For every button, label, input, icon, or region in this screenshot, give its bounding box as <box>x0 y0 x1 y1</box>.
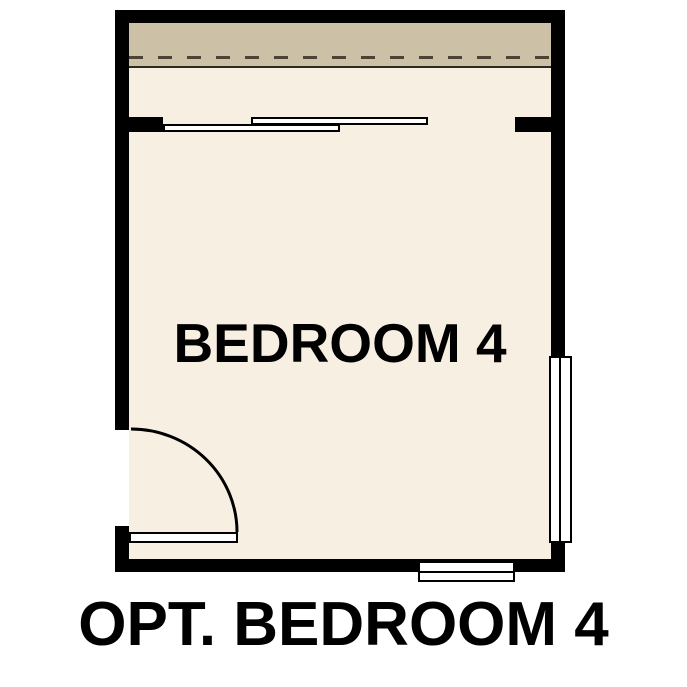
closet-wall-stub-left <box>129 117 163 132</box>
bypass-door-panel-front <box>163 124 340 132</box>
window-right-divider <box>559 358 561 541</box>
wall-left-lower <box>115 526 129 572</box>
plan-title: OPT. BEDROOM 4 <box>0 594 687 656</box>
wall-left-upper <box>115 10 129 430</box>
wall-top <box>115 10 565 23</box>
closet-wall-stub-right <box>515 117 551 132</box>
room-label: BEDROOM 4 <box>129 316 551 371</box>
floorplan-canvas: BEDROOM 4 OPT. BEDROOM 4 <box>0 0 687 687</box>
closet-band <box>129 23 551 68</box>
room-floor <box>129 23 551 559</box>
wall-right-upper <box>551 10 565 356</box>
closet-dashed-line <box>129 56 551 59</box>
door-leaf <box>129 532 238 543</box>
window-bottom <box>418 561 515 582</box>
wall-right-lower <box>551 543 565 572</box>
window-bottom-divider <box>420 571 513 573</box>
window-right <box>549 356 572 543</box>
